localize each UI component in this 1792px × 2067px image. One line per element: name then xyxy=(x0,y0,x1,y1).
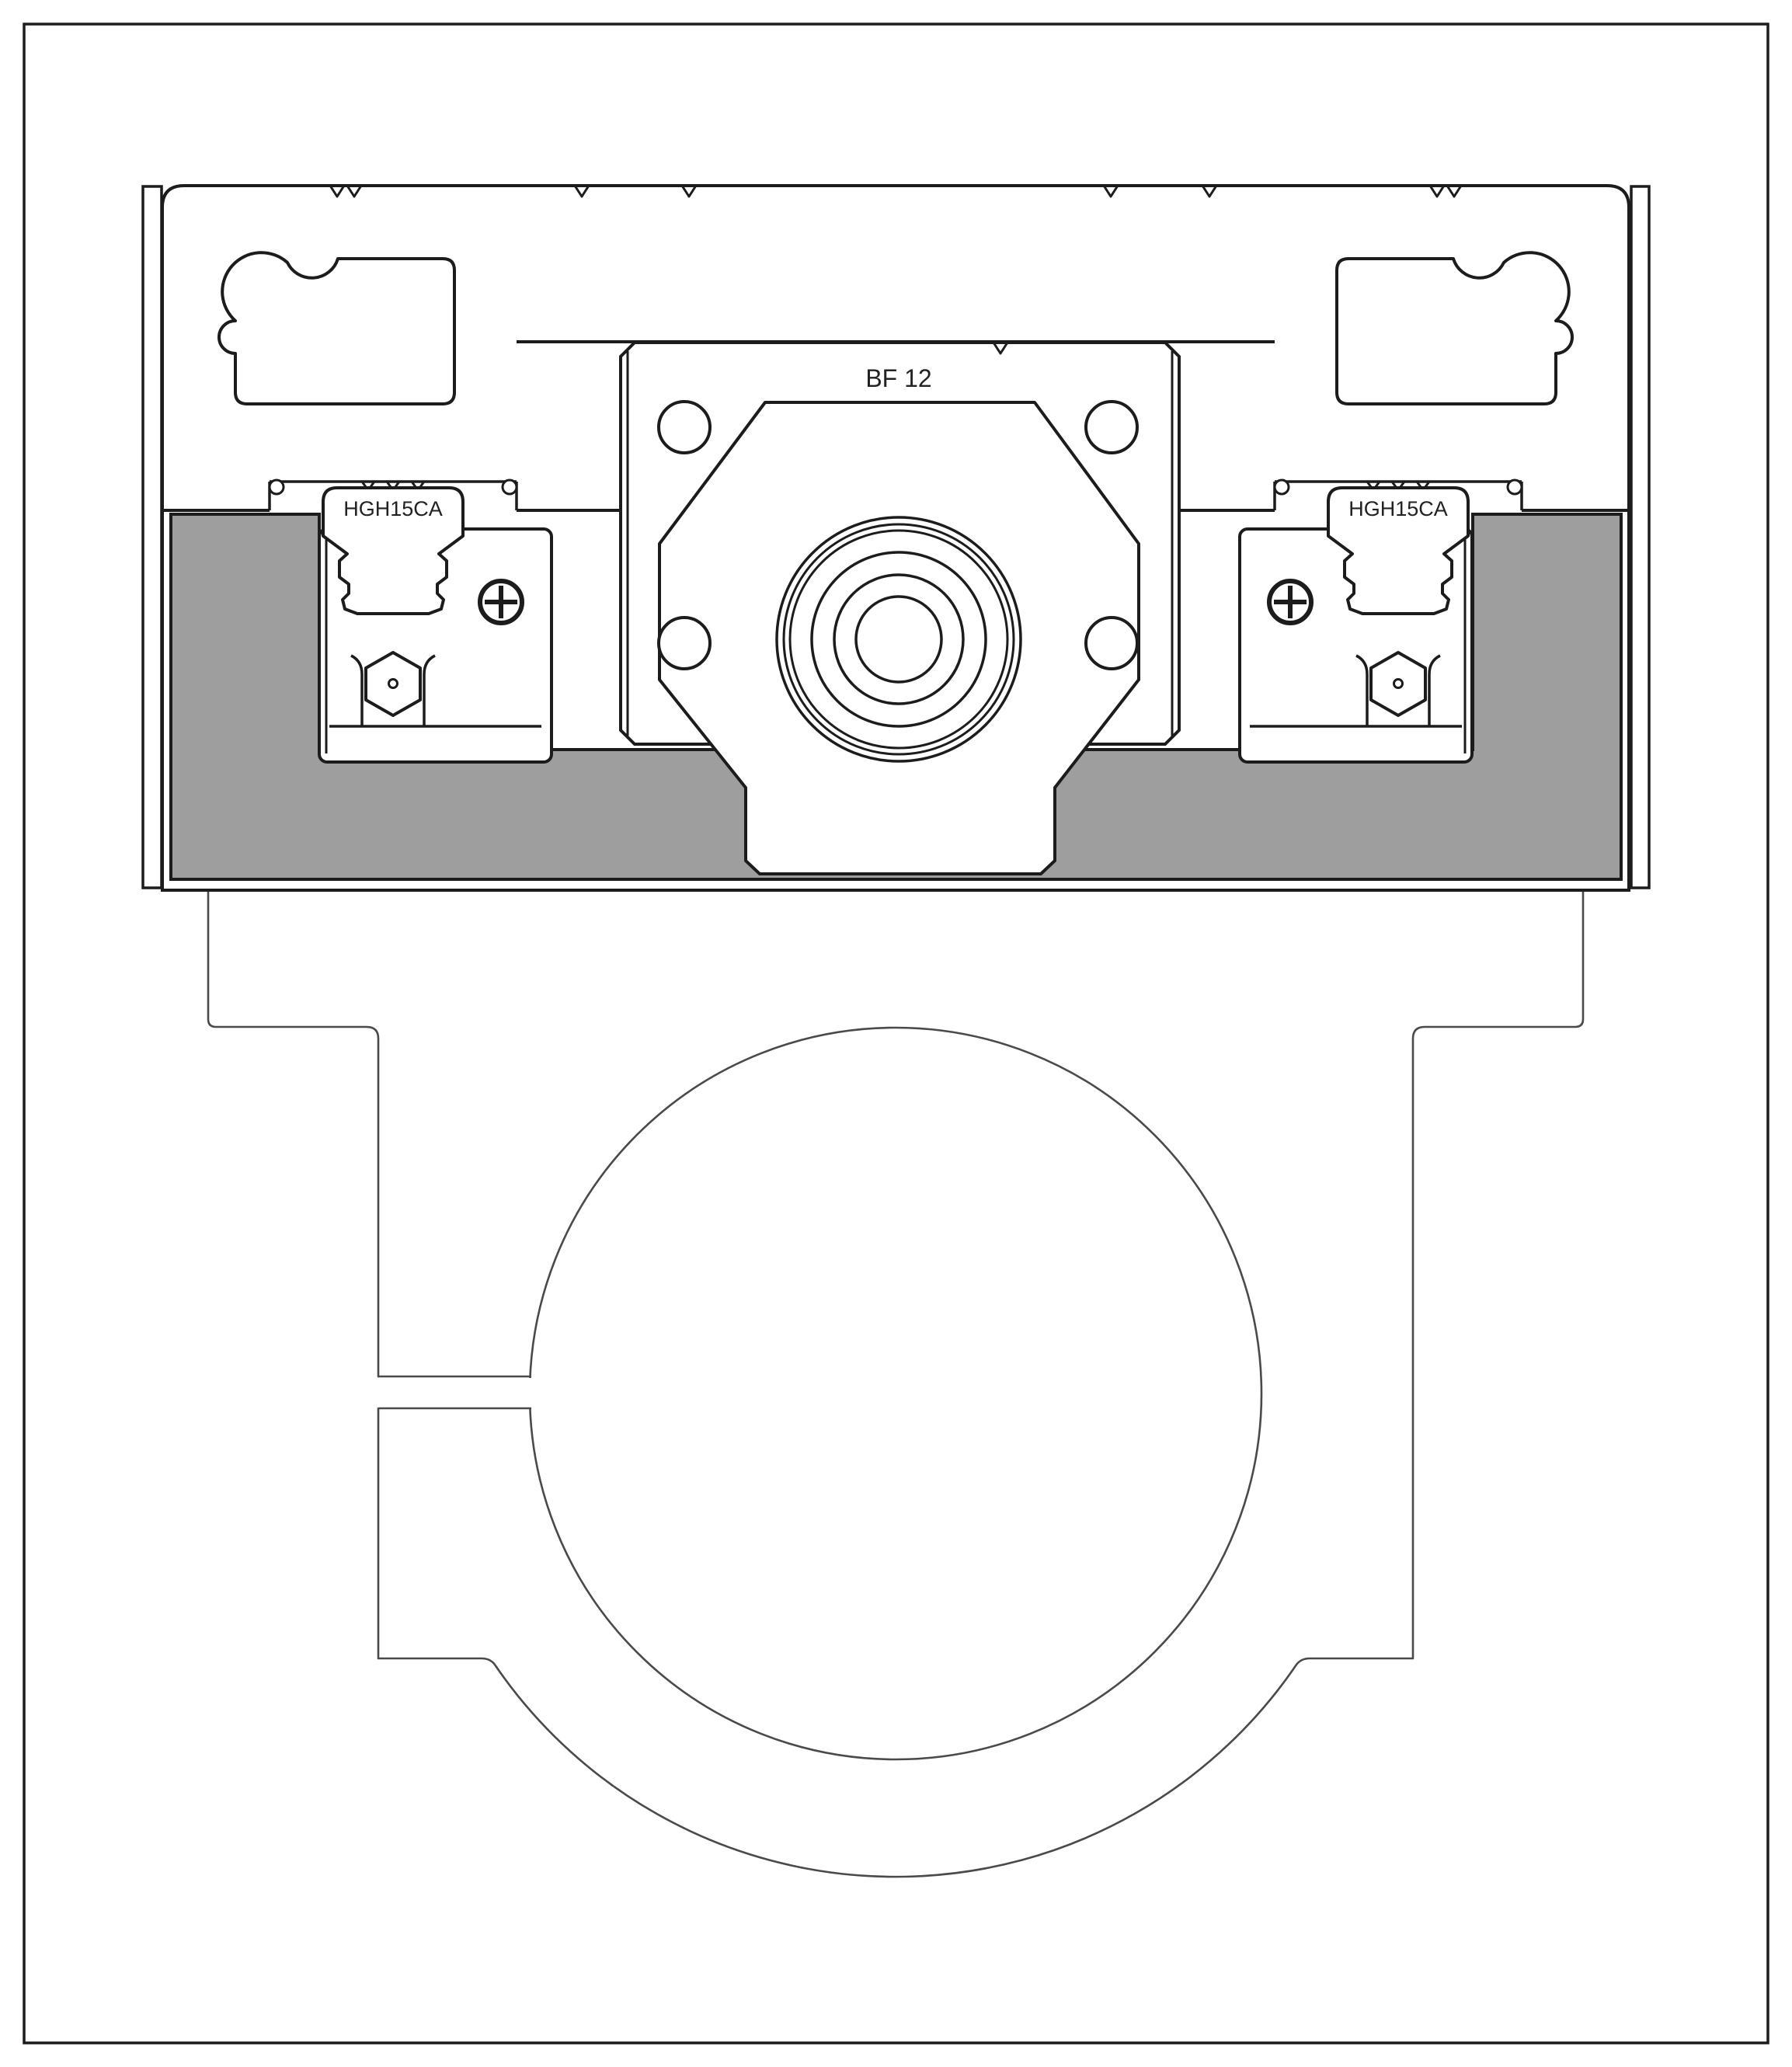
bearing-block-label: BF 12 xyxy=(865,364,931,392)
bolt-hole-bottom-left xyxy=(659,618,710,669)
left-carriage-label: HGH15CA xyxy=(343,497,443,520)
spindle-bore xyxy=(530,1028,1261,1759)
tslot-cutout-left xyxy=(219,252,454,404)
right-carriage-label: HGH15CA xyxy=(1348,497,1448,520)
spindle-clamp xyxy=(208,890,1583,1877)
drawing-canvas: HGH15CA HGH15CA BF 12 xyxy=(0,0,1792,2067)
clamp-slit-gap xyxy=(377,1378,534,1408)
end-strip-right xyxy=(1631,186,1649,888)
bolt-hole-bottom-right xyxy=(1086,618,1137,669)
tslot-cutout-right xyxy=(1337,252,1572,404)
technical-drawing: HGH15CA HGH15CA BF 12 xyxy=(0,0,1792,2067)
bolt-hole-top-left xyxy=(659,402,710,453)
bolt-hole-top-right xyxy=(1086,402,1137,453)
end-strip-left xyxy=(143,186,162,888)
